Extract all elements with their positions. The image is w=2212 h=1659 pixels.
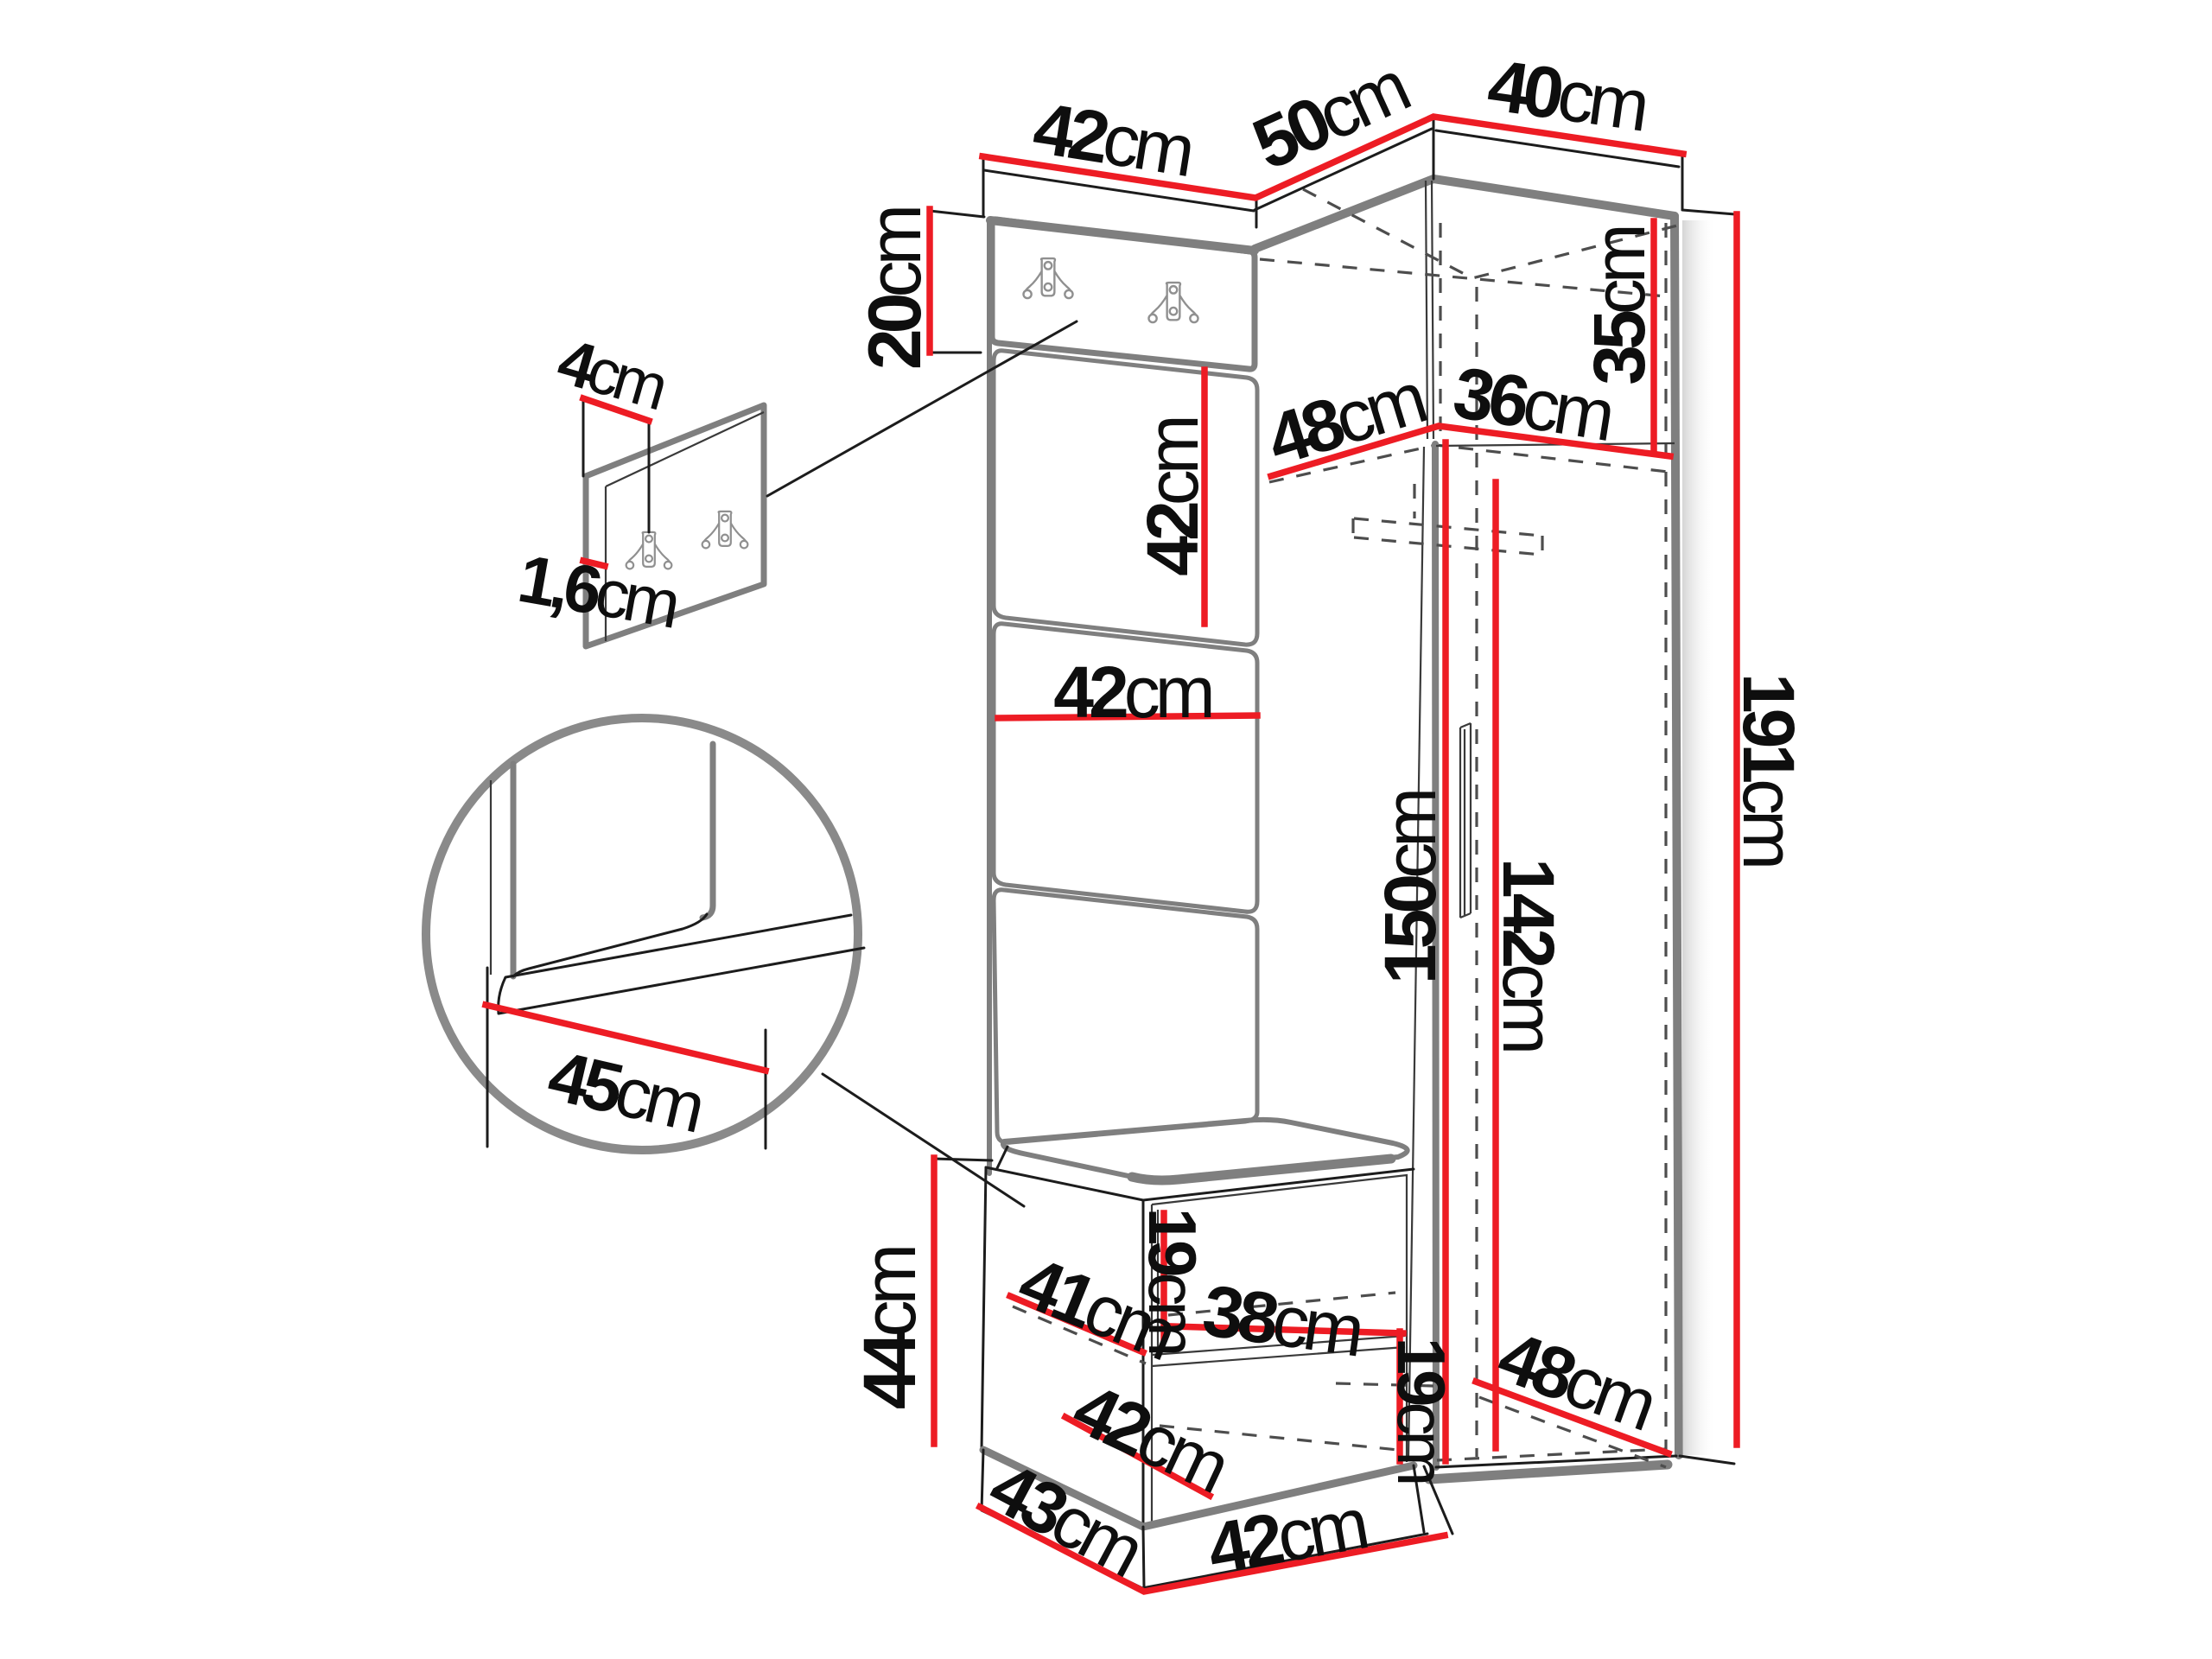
svg-text:42cm: 42cm — [1053, 652, 1211, 733]
svg-text:191cm: 191cm — [1728, 673, 1809, 866]
svg-text:19cm: 19cm — [1383, 1338, 1459, 1483]
svg-text:20cm: 20cm — [854, 208, 937, 370]
svg-text:35cm: 35cm — [1579, 227, 1660, 385]
svg-text:142cm: 142cm — [1488, 858, 1569, 1051]
svg-text:19cm: 19cm — [1135, 1208, 1211, 1353]
svg-text:44cm: 44cm — [849, 1248, 931, 1409]
svg-text:42cm: 42cm — [1132, 418, 1213, 575]
svg-text:150cm: 150cm — [1370, 791, 1451, 984]
